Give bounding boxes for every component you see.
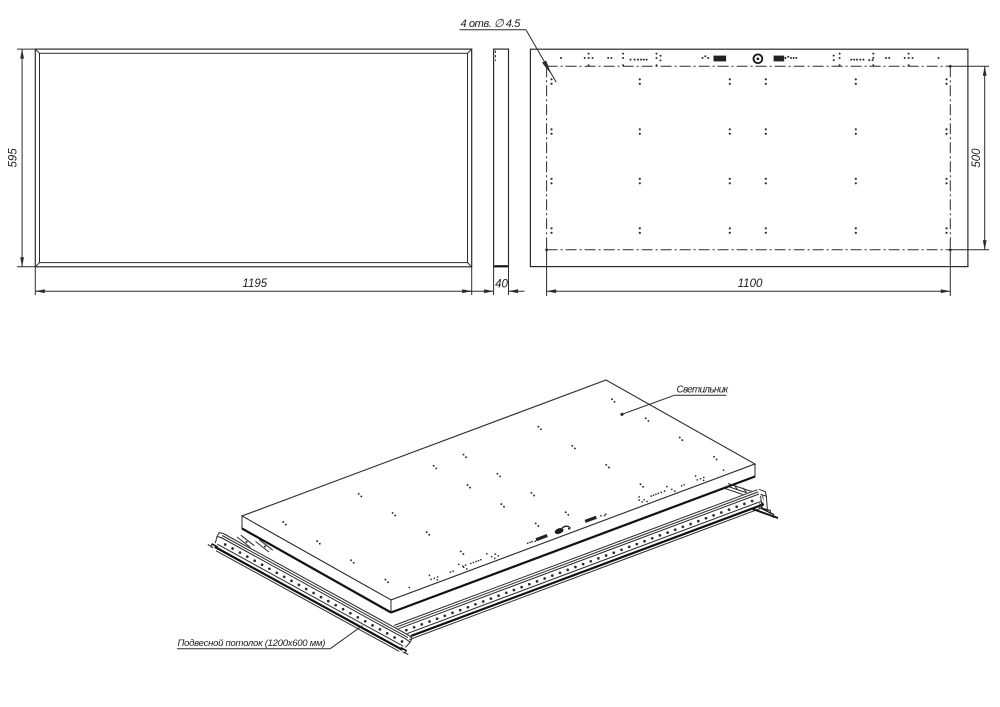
svg-text:1195: 1195	[242, 278, 267, 290]
svg-text:Подвесной потолок (1200х600 мм: Подвесной потолок (1200х600 мм)	[178, 638, 326, 649]
svg-text:595: 595	[8, 148, 20, 168]
svg-text:500: 500	[971, 148, 983, 168]
svg-text:40: 40	[495, 279, 508, 291]
svg-text:Светильник: Светильник	[677, 385, 729, 396]
svg-text:4 отв. ∅ 4.5: 4 отв. ∅ 4.5	[461, 18, 522, 30]
svg-text:1100: 1100	[738, 278, 763, 290]
